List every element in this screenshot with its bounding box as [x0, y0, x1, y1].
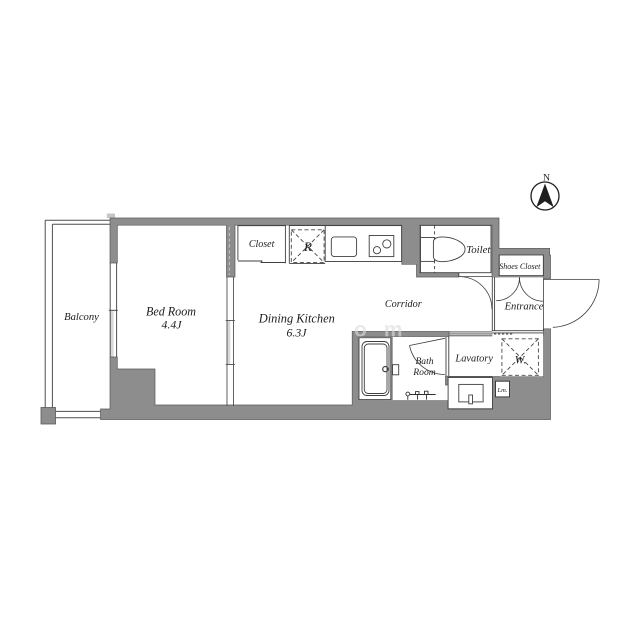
svg-text:Dining Kitchen: Dining Kitchen [258, 312, 335, 326]
svg-text:Entrance: Entrance [504, 301, 544, 312]
svg-text:R: R [303, 239, 312, 254]
svg-text:Lavatory: Lavatory [454, 354, 493, 365]
svg-text:Bed Room: Bed Room [146, 305, 196, 319]
svg-text:om: om [354, 319, 420, 342]
svg-text:4.4J: 4.4J [162, 318, 183, 332]
svg-text:Toilet: Toilet [466, 244, 491, 256]
svg-text:Lm.: Lm. [497, 387, 508, 394]
svg-text:Corridor: Corridor [385, 299, 422, 310]
svg-text:Closet: Closet [249, 239, 275, 250]
svg-text:6.3J: 6.3J [287, 326, 308, 340]
svg-text:Balcony: Balcony [64, 312, 99, 323]
svg-text:Shoes Closet: Shoes Closet [499, 262, 541, 271]
svg-text:W.: W. [515, 355, 526, 367]
svg-text:Bath: Bath [415, 356, 433, 367]
